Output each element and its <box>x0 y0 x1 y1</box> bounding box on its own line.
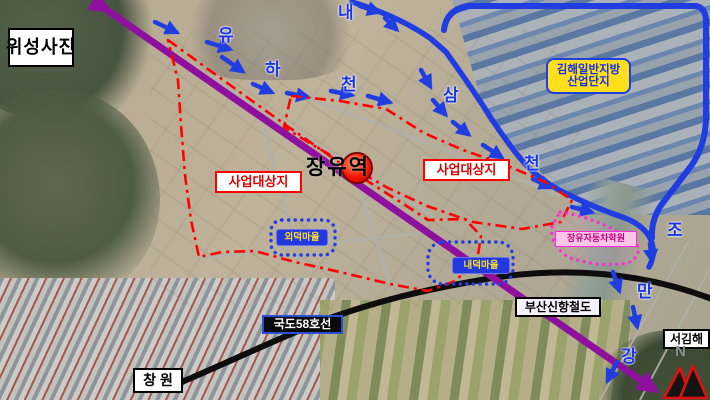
stream-char-man: 만 <box>637 277 653 302</box>
legend-satellite-badge: 위성사진 <box>8 28 74 67</box>
stream-char-yu: 유 <box>218 21 234 46</box>
changwon-label: 창 원 <box>133 368 183 393</box>
site-label-east: 사업대상지 <box>423 159 510 181</box>
site-label-west: 사업대상지 <box>215 171 302 193</box>
driving-school-label: 장유자동차학원 <box>555 231 637 247</box>
industrial-complex-line2: 산업단지 <box>567 76 609 88</box>
busan-railway-label: 부산신항철도 <box>515 297 601 317</box>
stream-char-cheon2: 천 <box>524 149 540 174</box>
west-gimhae-label: 서김해 <box>663 329 710 349</box>
village-label-west: 외덕마을 <box>276 229 328 246</box>
stream-border-top-right <box>444 6 706 238</box>
stream-char-gang: 강 <box>621 342 637 367</box>
village-label-east: 내덕마을 <box>452 257 510 274</box>
industrial-complex-label: 김해일반지방 산업단지 <box>546 58 631 94</box>
stream-char-cheon1: 천 <box>341 70 357 95</box>
satellite-map: 위성사진 김해일반지방 산업단지 장유역 사업대상지 사업대상지 외덕마을 내덕… <box>0 0 710 400</box>
stream-char-nae: 내 <box>338 0 354 23</box>
station-label: 장유역 <box>306 157 370 179</box>
stream-char-jo: 조 <box>667 216 683 241</box>
north-arrow-icon <box>664 366 707 398</box>
industrial-complex-line1: 김해일반지방 <box>557 64 620 76</box>
stream-char-ha: 하 <box>265 55 281 80</box>
stream-char-sam: 삼 <box>443 81 459 106</box>
route58-label: 국도58호선 <box>262 315 343 334</box>
north-letter: N <box>675 343 686 360</box>
